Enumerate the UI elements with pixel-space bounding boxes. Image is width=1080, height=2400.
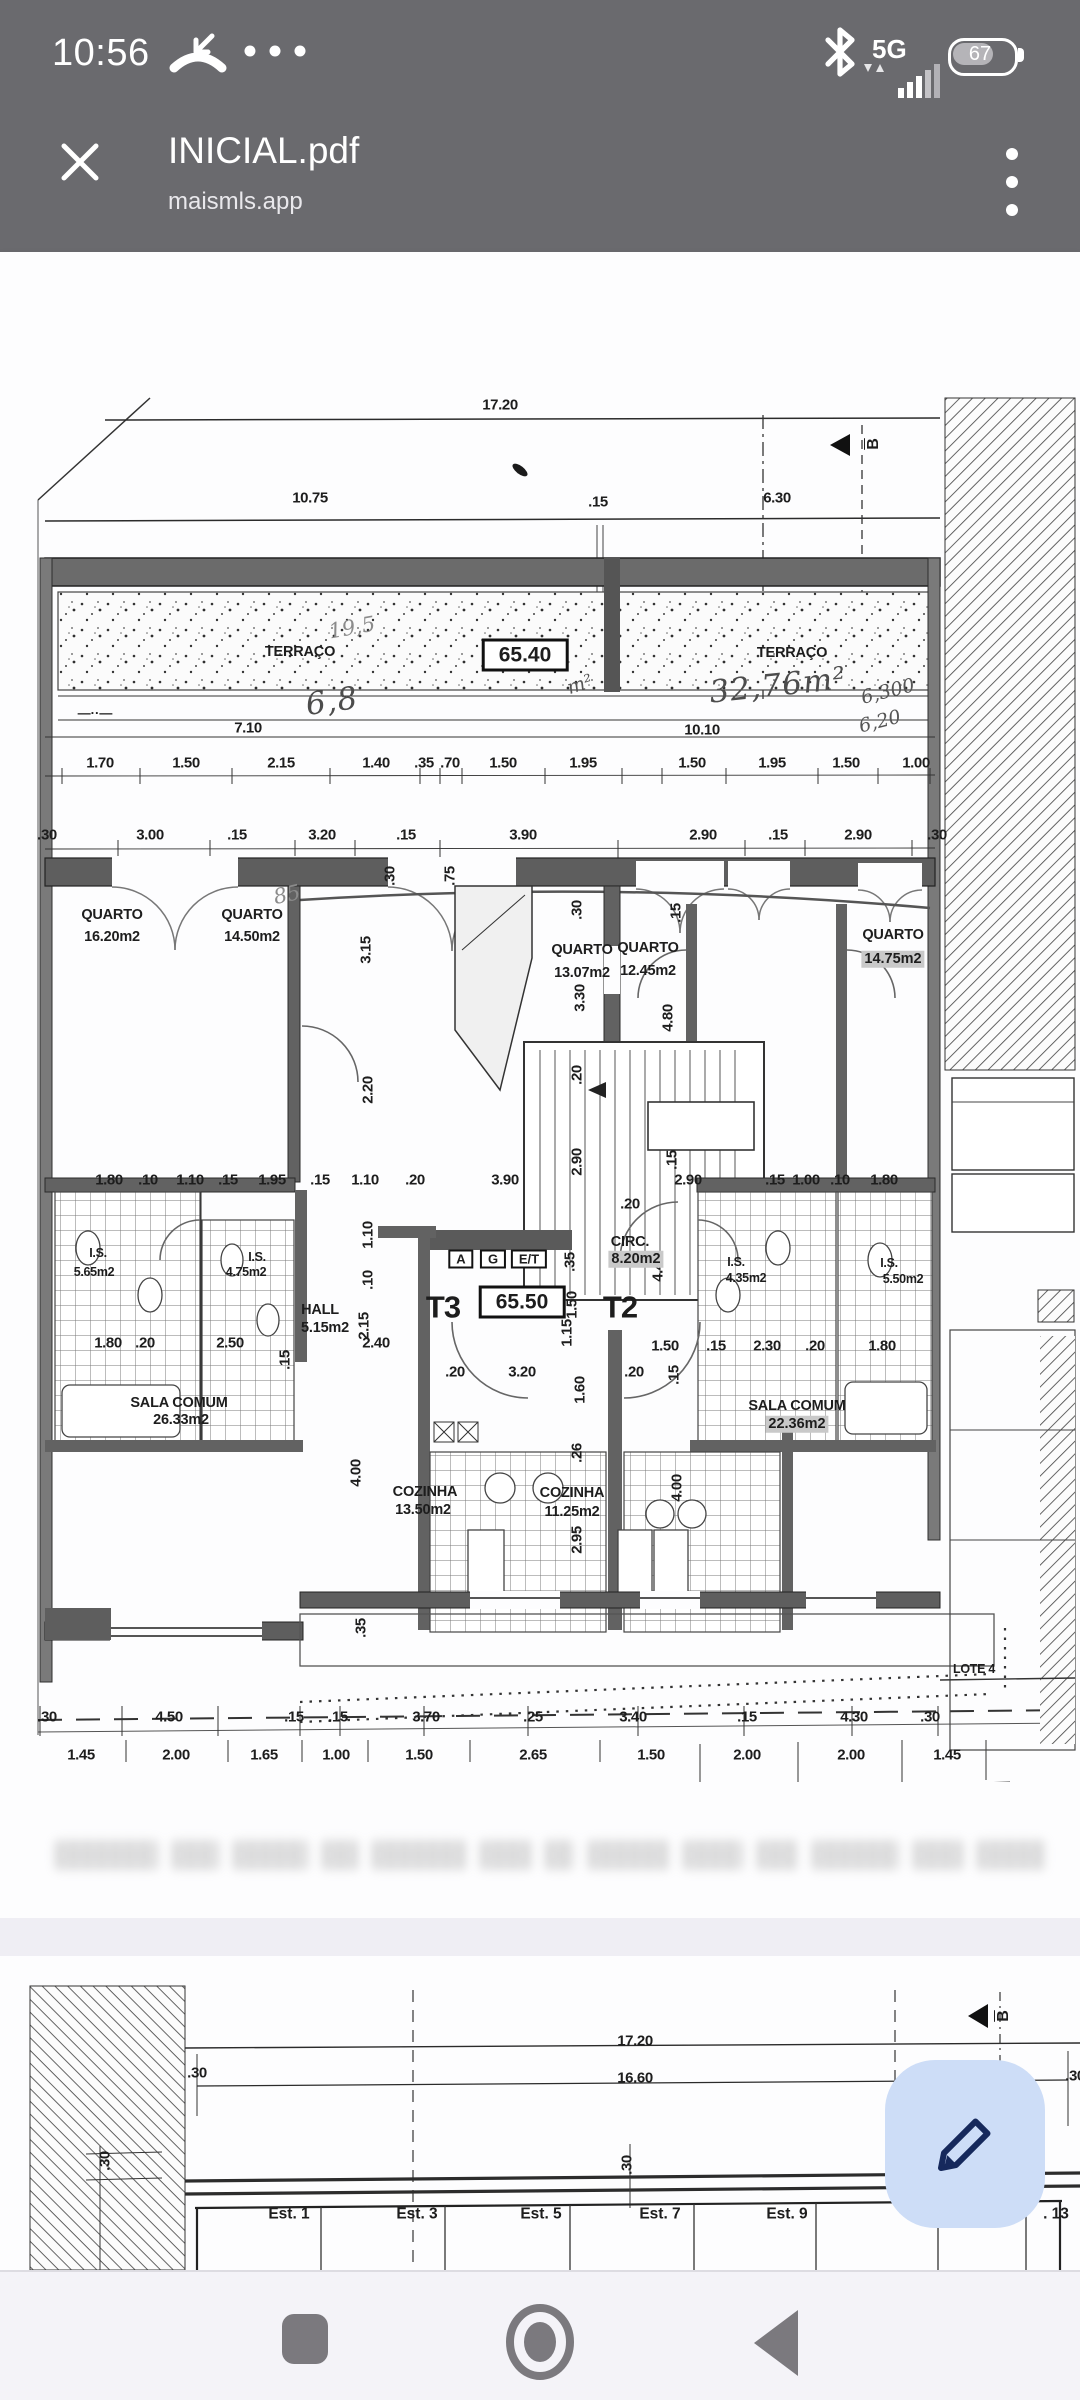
battery-nub bbox=[1018, 48, 1024, 62]
back-icon[interactable] bbox=[748, 2308, 808, 2378]
bluetooth-icon bbox=[820, 26, 860, 78]
blurred-text-blob bbox=[172, 1840, 219, 1870]
ellipsis-icon bbox=[242, 44, 312, 58]
blurred-text-blob bbox=[55, 1840, 158, 1870]
blurred-text-blob bbox=[913, 1840, 963, 1870]
recents-icon[interactable] bbox=[278, 2312, 332, 2366]
blurred-text-blob bbox=[480, 1840, 531, 1870]
network-type-label: 5G bbox=[872, 34, 907, 65]
illegible-caption-strip bbox=[55, 1824, 1045, 1886]
kebab-menu-icon[interactable] bbox=[994, 140, 1030, 224]
edit-fab[interactable] bbox=[885, 2060, 1045, 2228]
floor-plan-drawing bbox=[0, 390, 1080, 1782]
battery-level: 67 bbox=[951, 41, 1009, 67]
document-source: maismls.app bbox=[168, 188, 303, 216]
blurred-text-blob bbox=[683, 1840, 743, 1870]
blurred-text-blob bbox=[545, 1840, 574, 1870]
home-icon[interactable] bbox=[500, 2304, 580, 2380]
battery-icon: 67 bbox=[948, 38, 1018, 76]
page-1[interactable]: 17.2010.75.156.30BTERRAÇO19,565.40m²6,8T… bbox=[0, 252, 1080, 1918]
blurred-text-blob bbox=[977, 1840, 1045, 1870]
nav-bar bbox=[0, 2270, 1080, 2400]
status-bar: 10:56 5G 67 bbox=[0, 0, 1080, 112]
blurred-text-blob bbox=[812, 1840, 899, 1870]
screen: 10:56 5G 67 INICIAL.pdf bbox=[0, 0, 1080, 2400]
clock: 10:56 bbox=[52, 32, 150, 75]
blurred-text-blob bbox=[372, 1840, 466, 1870]
close-icon[interactable] bbox=[56, 138, 104, 186]
page-gap bbox=[0, 1918, 1080, 1956]
document-title: INICIAL.pdf bbox=[168, 130, 359, 172]
blurred-text-blob bbox=[322, 1840, 358, 1870]
blurred-text-blob bbox=[588, 1840, 669, 1870]
signal-bars-icon bbox=[862, 62, 942, 102]
blurred-text-blob bbox=[233, 1840, 308, 1870]
blurred-text-blob bbox=[757, 1840, 798, 1870]
pdf-header: INICIAL.pdf maismls.app bbox=[0, 112, 1080, 255]
pencil-icon bbox=[929, 2108, 1001, 2180]
